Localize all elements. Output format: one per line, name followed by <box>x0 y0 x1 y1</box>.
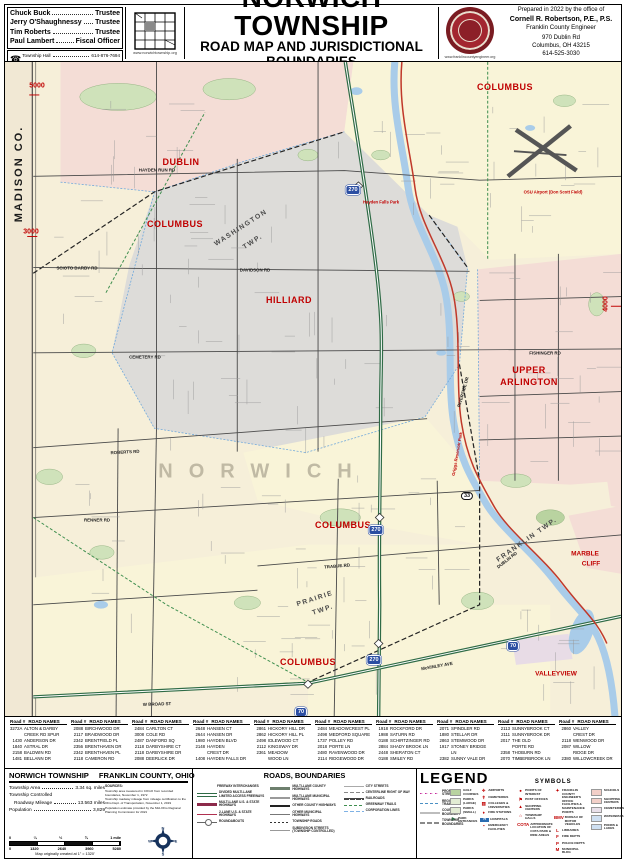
compass-s: S <box>162 852 165 857</box>
legend-entry: DIVIDED MULTI-LANE LIMITED ACCESS FREEWA… <box>197 791 265 798</box>
legend-entry: ROUNDABOUTS <box>197 820 265 824</box>
legend-entry: CENTERLINE RIGHT OF WAY <box>344 791 412 795</box>
road-name: SUNNY VALE DR <box>451 756 494 762</box>
road-name: DEERLICK DR <box>146 756 189 762</box>
legend-title: LEGEND <box>420 770 489 787</box>
legend-box: LEGEND SYMBOLS PROPOSED STREETS REGIONAL… <box>417 769 621 858</box>
legend-swatch-entry: SCHOOLS <box>591 789 618 796</box>
scale-label-miles: 0 <box>9 836 11 840</box>
legend-line-sample <box>197 803 217 806</box>
area-swatch <box>591 824 602 831</box>
source-line: Township area measured in COGO from reco… <box>105 789 188 797</box>
legend-entry: RAILROADS <box>344 797 412 801</box>
official-name: Paul Lambert <box>10 37 54 46</box>
legend-entry: TOWNSHIP ROADS <box>270 820 338 824</box>
map-area: MADISON CO.500030004000DUBLINCOLUMBUSWAS… <box>5 61 621 716</box>
dotted-leader <box>53 28 93 34</box>
officials-list: Chuck Buck Trustee Jerry O'Shaughnessy T… <box>7 7 123 49</box>
legend-swatch-entry: CEMETERIES <box>591 807 618 814</box>
dotted-leader <box>84 18 93 24</box>
legend-swatch-entry: SHOPPING CENTERS <box>591 798 618 805</box>
legend-entry: CITY STREETS <box>344 785 412 789</box>
engineer-website: www.franklincountyengineer.org <box>445 55 496 59</box>
legend-entry-label: OTHER MUNICIPAL HIGHWAYS <box>292 811 338 818</box>
symbol-label: FIRE STATIONS <box>488 811 511 815</box>
legend-line-sample <box>420 803 440 804</box>
symbol-icon: COTA <box>517 823 529 827</box>
symbol-icon: M <box>554 848 561 852</box>
legend-swatch-entry: PONDS & LAKES <box>591 824 618 831</box>
legend-swatch-entry: PARKS (SMALL) <box>450 807 477 814</box>
symbol-entry: M MUNICIPAL BLDG <box>554 848 588 855</box>
road-row: 2118 CAMERON RD <box>71 756 128 762</box>
scale-label-miles: 1 mile <box>110 836 121 840</box>
source-line: Population estimate provided by the Mid-… <box>105 806 188 814</box>
road-row: 2114 RIDGEWOOD DR <box>315 756 372 762</box>
symbol-icon: ⌂ <box>517 814 524 818</box>
symbol-label: LIBRARIES <box>562 829 579 833</box>
township-website: www.norwichtownship.org <box>133 51 177 55</box>
road-name: SMILEY RD <box>390 756 433 762</box>
road-index-column: Road # ROAD NAMES 2860 VALLEY CREST DR 2… <box>557 719 618 766</box>
symbol-entry: F FIRE DEPTS <box>554 835 588 839</box>
legend-entry: COUNTY BOUNDARY <box>420 809 447 816</box>
info-title-left: NORWICH TOWNSHIP <box>9 771 89 780</box>
golf-course <box>536 510 564 526</box>
road-row: 1408 HAYDEN FALLS DR <box>193 756 250 762</box>
legend-line-sample <box>344 805 364 806</box>
legend-line-sample <box>270 814 290 815</box>
road-name: WOOD LN <box>268 756 311 762</box>
road-names-header: ROAD NAMES <box>455 719 486 724</box>
legend-entry-label: MULTI-LANE MUNICIPAL HIGHWAYS <box>292 795 338 802</box>
road-names-header: ROAD NAMES <box>28 719 59 724</box>
title-block: NORWICH TOWNSHIP ROAD MAP AND JURISDICTI… <box>185 5 438 61</box>
scale-label-feet: 3960 <box>85 847 93 851</box>
info-title-right: FRANKLIN COUNTY, OHIO <box>99 771 195 780</box>
symbol-icon: ▥ <box>480 802 487 806</box>
symbol-entry: ▪ EMERGENCY FACILITIES <box>480 824 514 831</box>
legend-line-sample <box>270 787 290 789</box>
symbol-entry: P POLICE DEPTS <box>554 842 588 846</box>
legend-entry-label: GOLF COURSES <box>463 789 478 796</box>
legend-entry-label: 2-LANE U.S. & STATE HIGHWAYS <box>219 811 265 818</box>
road-index-column: Road # ROAD NAMES 2113 SUNNYBROOK CT 211… <box>496 719 557 766</box>
symbol-label: HOSPITALS <box>490 818 507 822</box>
road-names-header: ROAD NAMES <box>394 719 425 724</box>
road-row: 2088 DEERLICK DR <box>132 756 189 762</box>
road-number: 2114 <box>315 756 327 762</box>
road-index-column: Road # ROAD NAMES 2861 HICKORY HILL DR 2… <box>252 719 313 766</box>
legend-entry-label: PARKS (SMALL) <box>463 807 477 814</box>
road-number-header: Road # <box>315 719 330 724</box>
road-number: 0188 <box>376 756 388 762</box>
symbol-label: BUREAU OF MOTOR VEHICLES <box>565 816 588 827</box>
road-index-header: Road # ROAD NAMES <box>437 719 494 725</box>
legend-entry-label: PONDS & LAKES <box>604 824 618 831</box>
legend-entry: OTHER COUNTY HIGHWAYS <box>270 804 338 808</box>
map-sheet: Chuck Buck Trustee Jerry O'Shaughnessy T… <box>0 0 626 863</box>
legend-entry-label: SCHOOLS <box>604 789 619 793</box>
road-index-column: Road # ROAD NAMES 2484 CARLTON CT 3008 C… <box>130 719 191 766</box>
legend-entry: MULTI-LANE COUNTY HIGHWAYS <box>270 785 338 792</box>
official-name: Chuck Buck <box>10 9 50 18</box>
roads-boundaries-title: ROADS, BOUNDARIES <box>197 771 412 780</box>
legend-entry-label: MULTI-LANE U.S. & STATE HIGHWAYS <box>219 801 265 808</box>
symbol-entry: ▲ SHOPPING CENTERS <box>517 805 551 812</box>
map-canvas <box>5 62 621 716</box>
scale-label-feet: 5280 <box>113 847 121 851</box>
madison-county-strip <box>5 62 32 716</box>
legend-entry-label: ROUNDABOUTS <box>219 820 244 824</box>
area-swatch <box>450 789 461 796</box>
engineer-addr2: Columbus, OH 43215 <box>503 43 619 51</box>
symbol-icon: P <box>554 842 561 846</box>
legend-entry: OTHER MUNICIPAL HIGHWAYS <box>270 811 338 818</box>
legend-entry: TOWNSHIP BOUNDARIES <box>420 819 447 826</box>
road-row: 2380 WILLOWCREEK DR <box>559 756 616 762</box>
road-index-header: Road # ROAD NAMES <box>71 719 128 725</box>
road-names-header: ROAD NAMES <box>516 719 547 724</box>
official-row: Jerry O'Shaughnessy Trustee <box>10 18 120 27</box>
contact-row: Township Hall 614-876-7694 <box>22 51 120 60</box>
symbol-label: CEMETERIES <box>488 796 508 800</box>
stat-value: 13.563 miles <box>78 800 105 807</box>
symbol-entry: ▥ COLLEGES & UNIVERSITIES <box>480 802 514 809</box>
symbol-label: AIRPORTS <box>488 789 504 793</box>
road-names-header: ROAD NAMES <box>150 719 181 724</box>
legend-line-sample <box>420 822 440 823</box>
legend-entry: 2-LANE U.S. & STATE HIGHWAYS <box>197 811 265 818</box>
scale-label-feet: 0 <box>9 847 11 851</box>
symbol-entry: ● POINTS OF INTEREST <box>517 789 551 796</box>
contact-label: Township Hall <box>22 53 50 60</box>
legend-line-sample <box>344 786 364 787</box>
official-row: Chuck Buck Trustee <box>10 9 120 18</box>
symbol-icon: ✝ <box>480 796 487 800</box>
road-number-header: Road # <box>376 719 391 724</box>
symbol-label: POINTS OF INTEREST <box>525 789 551 796</box>
road-index-header: Road # ROAD NAMES <box>498 719 555 725</box>
road-names-header: ROAD NAMES <box>333 719 364 724</box>
road-index-header: Road # ROAD NAMES <box>193 719 250 725</box>
legend-line-sample <box>204 784 210 790</box>
legend-entry-label: PARK ENTRANCES <box>458 817 477 824</box>
scale-bar-graphic <box>9 841 121 846</box>
scale-label-miles: ½ <box>59 836 62 840</box>
legend-entry-label: WATERWAYS <box>604 815 624 819</box>
symbol-label: COLLEGES & UNIVERSITIES <box>488 802 514 809</box>
symbol-label: SHOPPING CENTERS <box>525 805 551 812</box>
road-number-header: Road # <box>498 719 513 724</box>
road-index-header: Road # ROAD NAMES <box>254 719 311 725</box>
road-number: 2070 <box>498 756 510 762</box>
road-number-header: Road # <box>193 719 208 724</box>
engineer-name: Cornell R. Robertson, P.E., P.S. <box>503 15 619 24</box>
legend-entry: MULTI-LANE MUNICIPAL HIGHWAYS <box>270 795 338 802</box>
dotted-leader <box>53 51 90 57</box>
area-swatch <box>591 807 602 814</box>
legend-entry-label: FREEWAY INTERCHANGES <box>217 785 259 789</box>
symbol-label: FIRE DEPTS <box>562 835 580 839</box>
legend-entry-label: CEMETERIES <box>604 807 624 811</box>
header: Chuck Buck Trustee Jerry O'Shaughnessy T… <box>5 5 621 61</box>
symbol-icon: ▲ <box>517 805 524 809</box>
legend-entry-label: TOWNSHIP ROADS <box>292 820 321 824</box>
road-index-column: Road # ROAD NAMES 2088 BIRCHWOOD DR 2117… <box>69 719 130 766</box>
road-index-column: Road # ROAD NAMES 2648 HANSEN CT 2644 HA… <box>191 719 252 766</box>
legend-entry: MULTI-LANE U.S. & STATE HIGHWAYS <box>197 801 265 808</box>
legend-entry: REGIONAL TRAIL <box>420 800 447 807</box>
legend-swatch-entry: ▶ PARK ENTRANCES <box>450 817 477 824</box>
info-title: NORWICH TOWNSHIP FRANKLIN COUNTY, OHIO <box>9 771 188 783</box>
symbol-label: MUNICIPAL BLDG <box>562 848 588 855</box>
legend-entry: FREEWAY INTERCHANGES <box>197 785 265 789</box>
road-number-header: Road # <box>559 719 574 724</box>
symbol-entry: ✝ CEMETERIES <box>480 796 514 800</box>
county-engineer-seal-icon <box>446 7 494 54</box>
stat-row: Roadway Mileage 13.563 miles <box>9 799 105 807</box>
symbol-label: POLICE DEPTS <box>562 842 585 846</box>
road-number: 2382 <box>437 756 449 762</box>
scale-label-miles: ¼ <box>34 836 37 840</box>
page-title: NORWICH TOWNSHIP <box>185 0 438 40</box>
legend-entry-label: GREENWAY TRAILS <box>366 803 397 807</box>
symbol-icon: ⚑ <box>517 798 524 802</box>
dotted-leader <box>52 9 93 15</box>
scale-label-feet: 1320 <box>30 847 38 851</box>
symbol-icon: L <box>554 829 561 833</box>
scale-label-feet: 2640 <box>58 847 66 851</box>
roads-boundaries-legend: ROADS, BOUNDARIES FREEWAY INTERCHANGES D… <box>193 769 417 858</box>
seal-panel: www.franklincountyengineer.org <box>438 7 501 59</box>
scale-bar: 0¼½¾1 mile 01320264039605280 Map origina… <box>9 836 121 856</box>
symbol-entry: ⌂ TOWNSHIP HALLS <box>517 814 551 821</box>
legend-line-sample <box>344 792 364 793</box>
legend-line-sample <box>270 830 290 831</box>
legend-entry-label: PARKS (LARGE) <box>463 798 477 805</box>
legend-entry-label: SUBDIVISION STREETS (TOWNSHIP CONTROLLED… <box>292 827 338 834</box>
symbol-icon: F <box>554 835 561 839</box>
symbol-icon: BMV <box>554 816 564 820</box>
road-name: RIDGEWOOD DR <box>329 756 372 762</box>
road-index-column: Road # ROAD NAMES 1918 ROCKFORD DR 1988 … <box>374 719 435 766</box>
symbol-label: APPROXIMATE LOCATION OF COTA PARK & RIDE… <box>530 823 552 837</box>
road-number-header: Road # <box>437 719 452 724</box>
road-number-header: Road # <box>10 719 25 724</box>
legend-symbol-icon: ▶ <box>450 817 457 821</box>
symbol-label: TOWNSHIP HALLS <box>525 814 551 821</box>
road-row: 2382 SUNNY VALE DR <box>437 756 494 762</box>
stat-value: 3,829 <box>93 807 105 814</box>
road-index-column: Road # ROAD NAMES 2071 SPINDLER RD 1880 … <box>435 719 496 766</box>
legend-entry-label: DIVIDED MULTI-LANE LIMITED ACCESS FREEWA… <box>219 791 265 798</box>
road-row: 1481 BELLANN DR <box>10 756 67 762</box>
legend-line-sample <box>270 797 290 799</box>
road-number <box>254 756 266 762</box>
legend-swatch-entry: WATERWAYS <box>591 815 618 822</box>
legend-line-sample <box>270 822 290 823</box>
legend-line-sample <box>197 814 217 815</box>
road-name: WILLOWCREEK DR <box>573 756 616 762</box>
compass-w: W <box>148 839 152 844</box>
symbol-label: FRANKLIN COUNTY ENGINEER'S OFFICE FACILI… <box>562 789 588 814</box>
symbol-icon: ♦ <box>480 811 487 815</box>
road-row: 2070 TIMBERBROOK LN <box>498 756 555 762</box>
legend-entry-label: CORPORATION LINES <box>366 809 400 813</box>
legend-entry-label: OTHER COUNTY HIGHWAYS <box>292 804 335 808</box>
symbol-entry: BMV BUREAU OF MOTOR VEHICLES <box>554 816 588 827</box>
legend-entry-label: MULTI-LANE COUNTY HIGHWAYS <box>292 785 338 792</box>
engineer-org: Franklin County Engineer <box>503 24 619 32</box>
dotted-leader <box>42 784 73 789</box>
legend-line-sample <box>197 793 217 797</box>
road-number: 1408 <box>193 756 205 762</box>
symbol-entry: L LIBRARIES <box>554 829 588 833</box>
prepared-by-block: Prepared in 2022 by the office of Cornel… <box>501 5 621 61</box>
road-index-column: Road # ROAD NAMES 3272A ALTON & DARBY CR… <box>8 719 69 766</box>
sources-block: SOURCES: Township area measured in COGO … <box>105 784 188 825</box>
road-number-header: Road # <box>71 719 86 724</box>
road-number-header: Road # <box>132 719 147 724</box>
official-role: Trustee <box>95 9 120 18</box>
road-index-header: Road # ROAD NAMES <box>315 719 372 725</box>
stat-label: Township Area <box>9 785 40 792</box>
road-index-column: Road # ROAD NAMES 2484 MEADOWCREST PL 24… <box>313 719 374 766</box>
road-number: 2088 <box>132 756 144 762</box>
road-name: CAMERON RD <box>85 756 128 762</box>
sheet-frame: Chuck Buck Trustee Jerry O'Shaughnessy T… <box>4 4 622 859</box>
symbol-label: POST OFFICES <box>525 798 548 802</box>
legend-line-sample <box>344 811 364 812</box>
legend-line-sample <box>420 812 440 814</box>
legend-line-sample <box>344 798 364 800</box>
road-index: Road # ROAD NAMES 3272A ALTON & DARBY CR… <box>5 716 621 768</box>
road-names-header: ROAD NAMES <box>89 719 120 724</box>
area-swatch <box>591 815 602 822</box>
stat-value: 3.34 sq. miles <box>75 785 105 792</box>
legend-entry: GREENWAY TRAILS <box>344 803 412 807</box>
scale-label-miles: ¾ <box>85 836 88 840</box>
road-number: 1481 <box>10 756 22 762</box>
legend-entry: SUBDIVISION STREETS (TOWNSHIP CONTROLLED… <box>270 827 338 834</box>
dotted-leader <box>54 799 76 804</box>
township-stats: Township Area 3.34 sq. miles Township Co… <box>9 784 105 825</box>
engineer-phone: 614-525-3030 <box>503 51 619 59</box>
compass-n: N <box>162 826 165 831</box>
stat-label: Township Controlled <box>9 792 52 799</box>
stat-row: Population 3,829 <box>9 807 105 815</box>
official-role: Trustee <box>95 18 120 27</box>
symbol-entry: ✦ FRANKLIN COUNTY ENGINEER'S OFFICE FACI… <box>554 789 588 814</box>
area-swatch <box>591 798 602 805</box>
symbol-icon: ● <box>517 789 524 793</box>
symbol-icon: ✦ <box>554 789 561 793</box>
road-index-header: Road # ROAD NAMES <box>376 719 433 725</box>
stat-label: Population <box>9 807 32 814</box>
official-row: Paul Lambert Fiscal Officer <box>10 37 120 46</box>
road-name: TIMBERBROOK LN <box>512 756 555 762</box>
symbol-entry: COTA APPROXIMATE LOCATION OF COTA PARK &… <box>517 823 551 837</box>
road-index-header: Road # ROAD NAMES <box>10 719 67 725</box>
area-swatch <box>450 798 461 805</box>
scale-caption: Map originally created at 1" = 1320' <box>9 852 121 856</box>
area-swatch <box>591 789 602 796</box>
symbol-icon: ✈ <box>480 789 487 793</box>
road-name: HAYDEN FALLS DR <box>207 756 250 762</box>
dotted-leader <box>54 792 103 796</box>
township-grid-icon <box>134 12 176 50</box>
legend-entry: PROPOSED STREETS <box>420 790 447 797</box>
compass-rose: N S W E <box>148 826 178 856</box>
source-line: Township roadway mileage from mileage ce… <box>105 797 188 805</box>
contact-phone: 614-876-7694 <box>91 53 120 60</box>
township-logo-panel: www.norwichtownship.org <box>125 7 185 59</box>
road-number: 2118 <box>71 756 83 762</box>
road-names-header: ROAD NAMES <box>211 719 242 724</box>
engineer-addr1: 970 Dublin Rd <box>503 35 619 43</box>
road-index-header: Road # ROAD NAMES <box>132 719 189 725</box>
area-swatch <box>450 807 461 814</box>
stat-row: Township Area 3.34 sq. miles <box>9 784 105 792</box>
road-row: 0188 SMILEY RD <box>376 756 433 762</box>
official-name: Tim Roberts <box>10 28 51 37</box>
road-number: 2380 <box>559 756 571 762</box>
legend-entry-label: CITY STREETS <box>366 785 389 789</box>
legend-entry-label: RAILROADS <box>366 797 385 801</box>
official-role: Trustee <box>95 28 120 37</box>
officials-panel: Chuck Buck Trustee Jerry O'Shaughnessy T… <box>5 5 125 61</box>
dotted-leader <box>34 807 91 812</box>
legend-swatch-entry: PARKS (LARGE) <box>450 798 477 805</box>
legend-entry-label: SHOPPING CENTERS <box>604 798 620 805</box>
legend-swatch-entry: GOLF COURSES <box>450 789 477 796</box>
symbols-title: SYMBOLS <box>489 779 618 785</box>
prepared-line: Prepared in 2022 by the office of <box>503 7 619 15</box>
footer-band: NORWICH TOWNSHIP FRANKLIN COUNTY, OHIO T… <box>5 768 621 858</box>
road-name: BELLANN DR <box>24 756 67 762</box>
dotted-leader <box>56 37 73 43</box>
stat-label: Roadway Mileage <box>9 800 52 807</box>
road-names-header: ROAD NAMES <box>272 719 303 724</box>
road-names-header: ROAD NAMES <box>577 719 608 724</box>
symbol-icon: H <box>480 818 489 823</box>
compass-e: E <box>175 839 178 844</box>
road-number-header: Road # <box>254 719 269 724</box>
official-name: Jerry O'Shaughnessy <box>10 18 82 27</box>
upper-arlington-area <box>478 254 621 485</box>
legend-entry: CORPORATION LINES <box>344 809 412 813</box>
symbol-label: EMERGENCY FACILITIES <box>488 824 514 831</box>
official-role: Fiscal Officer <box>76 37 120 46</box>
legend-entry-label: CENTERLINE RIGHT OF WAY <box>366 791 410 795</box>
township-info-box: NORWICH TOWNSHIP FRANKLIN COUNTY, OHIO T… <box>5 769 193 858</box>
legend-line-sample <box>197 822 217 823</box>
symbol-entry: H HOSPITALS <box>480 818 514 823</box>
road-index-header: Road # ROAD NAMES <box>559 719 616 725</box>
stat-row: Township Controlled <box>9 792 105 799</box>
symbol-entry: ✈ AIRPORTS <box>480 789 514 793</box>
official-row: Tim Roberts Trustee <box>10 28 120 37</box>
symbol-entry: ♦ FIRE STATIONS <box>480 811 514 815</box>
symbol-entry: ⚑ POST OFFICES <box>517 798 551 802</box>
symbol-icon: ▪ <box>480 824 487 828</box>
legend-line-sample <box>420 793 440 794</box>
road-row: WOOD LN <box>254 756 311 762</box>
legend-line-sample <box>270 805 290 807</box>
